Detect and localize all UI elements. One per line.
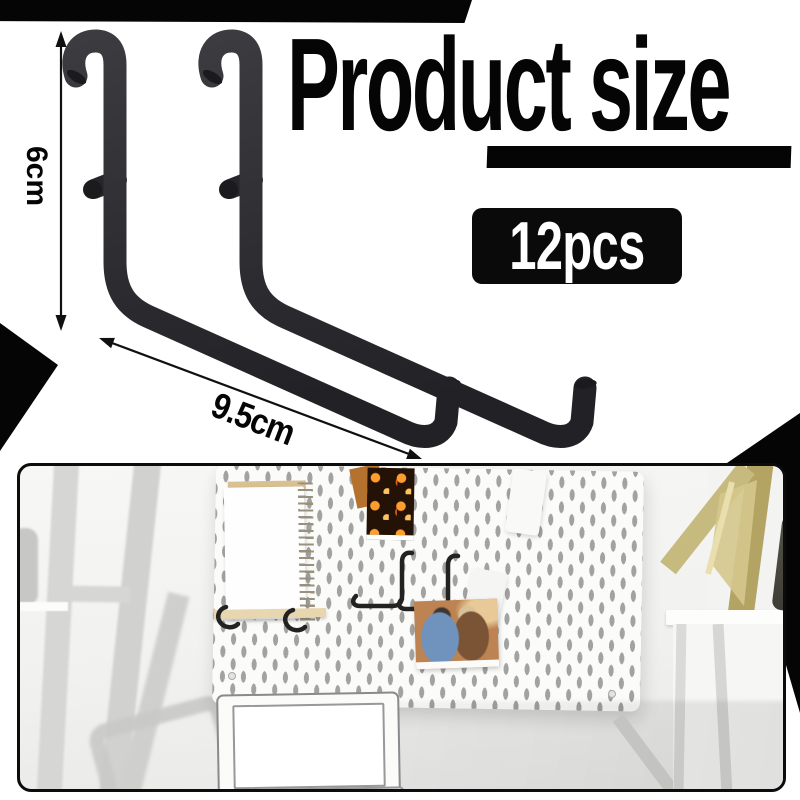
arrow-upleft-icon (99, 338, 115, 348)
desk-shadow (380, 701, 786, 792)
lifestyle-photo (17, 463, 786, 792)
arrow-up-icon (56, 31, 67, 47)
arrow-downright-icon (406, 449, 422, 459)
notebook-hook (218, 607, 238, 627)
couple-photo (414, 599, 499, 670)
notebook-hook (285, 610, 305, 630)
laptop-screen (232, 703, 385, 790)
laptop (216, 691, 401, 792)
height-dimension-label: 6cm (19, 146, 53, 206)
side-table-top (666, 610, 786, 625)
hooks-dimension-diagram (0, 0, 800, 463)
arrow-down-icon (56, 315, 67, 331)
product-size-infographic: Product size 12pcs 6cm 9. (0, 0, 800, 800)
